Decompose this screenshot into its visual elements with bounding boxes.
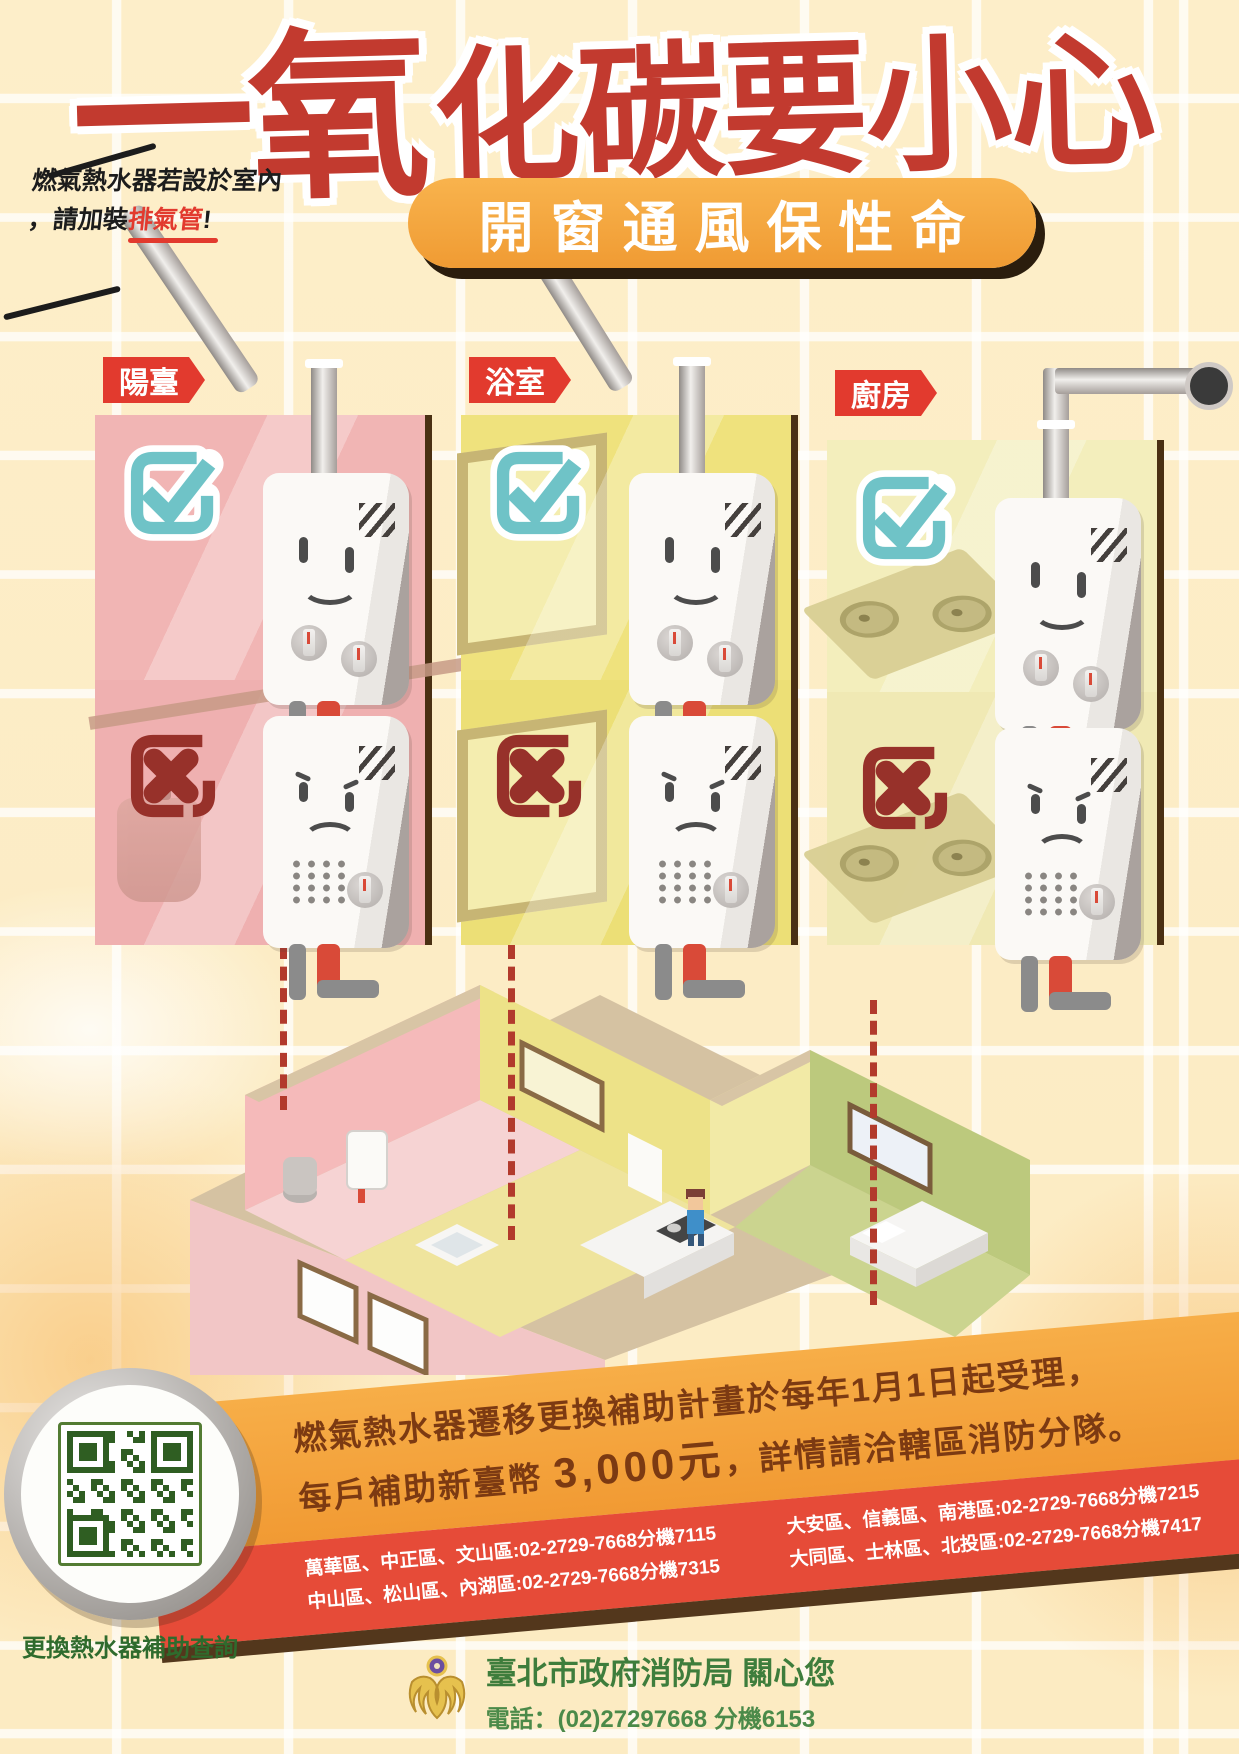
check-icon <box>487 441 591 545</box>
heater-knob <box>291 625 327 661</box>
kitchen-correct-zone <box>827 440 1157 692</box>
fire-dept-emblem <box>404 1654 470 1728</box>
water-heater-sad <box>995 728 1141 960</box>
kitchen-wrong-zone <box>827 692 1157 945</box>
panel-balcony: 陽臺 <box>95 415 432 945</box>
smile-face <box>301 569 359 605</box>
vent-slots <box>1091 528 1127 562</box>
red-underline <box>128 238 218 243</box>
cross-icon <box>121 724 225 828</box>
footer-text: 臺北市政府消防局 關心您 電話：(02)27297668 分機6153 <box>486 1648 836 1734</box>
side-note-line2: ，請加裝排氣管! <box>26 201 330 240</box>
heater-knob <box>1079 884 1115 920</box>
house-illustration <box>150 945 1070 1375</box>
water-pipes <box>283 944 403 1002</box>
slogan-text: 開窗通風保性命 <box>478 183 982 263</box>
balcony-correct-zone <box>95 415 425 680</box>
check-icon <box>121 441 225 545</box>
water-heater-happy <box>629 473 775 705</box>
vent-slots <box>359 503 395 537</box>
water-pipes <box>649 944 769 1002</box>
check-icon <box>853 466 957 570</box>
room-label-bathroom: 浴室 <box>469 357 571 403</box>
poster-page: 一氧 化碳要小心 燃氣熱水器若設於室內 ，請加裝排氣管! 開窗通風保性命 陽臺 <box>0 0 1239 1754</box>
speaker-dots <box>1021 870 1081 918</box>
vent-slots <box>1091 758 1127 792</box>
speaker-dots <box>655 858 715 906</box>
vent-slots <box>359 746 395 780</box>
cross-icon <box>487 724 591 828</box>
magnifier <box>4 1368 256 1620</box>
balcony-wrong-zone <box>95 680 425 945</box>
room-label-balcony: 陽臺 <box>103 357 205 403</box>
slogan-banner: 開窗通風保性命 <box>408 178 1036 268</box>
panel-bathroom: 浴室 <box>461 415 798 945</box>
heater-knob <box>341 641 377 677</box>
water-heater-sad <box>629 716 775 948</box>
footer-phone: 電話：(02)27297668 分機6153 <box>486 1699 836 1734</box>
bathroom-correct-zone <box>461 415 791 680</box>
cross-icon <box>853 736 957 840</box>
balcony-heater <box>347 1131 387 1189</box>
smile-face <box>667 569 725 605</box>
water-heater-happy <box>995 498 1141 730</box>
dashed-connector <box>870 1000 877 1305</box>
qr-label: 更換熱水器補助查詢 <box>10 1628 250 1663</box>
subsidy-amount: 3,000元 <box>551 1435 726 1497</box>
footer-org: 臺北市政府消防局 關心您 <box>486 1648 836 1693</box>
qr-code <box>58 1422 202 1566</box>
accent-slash <box>3 286 121 321</box>
heater-knob <box>657 625 693 661</box>
heater-knob <box>1023 650 1059 686</box>
panel-kitchen: 廚房 <box>827 440 1164 945</box>
heater-knob <box>707 641 743 677</box>
water-heater-happy <box>263 473 409 705</box>
frown-face <box>669 822 723 856</box>
bathroom-wrong-zone <box>461 680 791 945</box>
water-heater-sad <box>263 716 409 948</box>
room-label-kitchen: 廚房 <box>835 370 937 416</box>
vent-slots <box>725 746 761 780</box>
water-pipes <box>1015 956 1135 1014</box>
heater-knob <box>713 872 749 908</box>
exhaust-pipe-highlight: 排氣管 <box>127 206 205 234</box>
gas-cylinder <box>283 1157 317 1195</box>
speaker-dots <box>289 858 349 906</box>
dashed-connector <box>508 945 515 1240</box>
smile-face <box>1033 594 1091 630</box>
heater-knob <box>347 872 383 908</box>
vent-slots <box>725 503 761 537</box>
side-note: 燃氣熱水器若設於室內 ，請加裝排氣管! <box>26 162 334 240</box>
side-note-line1: 燃氣熱水器若設於室內 <box>30 162 334 201</box>
magnifier-glass <box>21 1385 239 1603</box>
frown-face <box>303 822 357 856</box>
exhaust-pipe-opening <box>1185 362 1233 410</box>
heater-knob <box>1073 666 1109 702</box>
frown-face <box>1035 834 1089 868</box>
